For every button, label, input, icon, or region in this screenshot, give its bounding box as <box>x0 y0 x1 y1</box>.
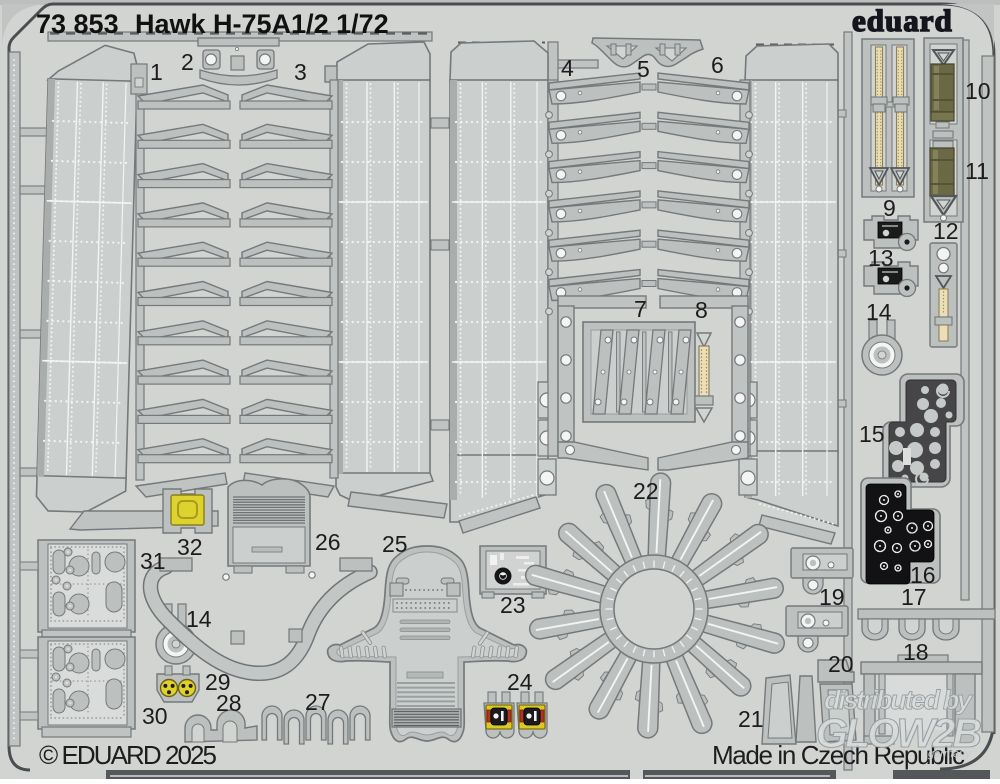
svg-text:7: 7 <box>634 296 647 322</box>
svg-text:10: 10 <box>965 78 991 104</box>
svg-text:14: 14 <box>186 606 212 632</box>
svg-text:germany: germany <box>928 748 972 760</box>
svg-text:23: 23 <box>500 592 526 618</box>
svg-text:22: 22 <box>633 478 659 504</box>
svg-text:19: 19 <box>819 584 845 610</box>
svg-text:4: 4 <box>561 55 574 81</box>
svg-text:17: 17 <box>901 584 927 610</box>
svg-text:9: 9 <box>883 195 896 221</box>
svg-text:14: 14 <box>866 299 892 325</box>
svg-text:32: 32 <box>177 534 203 560</box>
svg-text:20: 20 <box>828 651 854 677</box>
svg-text:1: 1 <box>150 59 163 85</box>
svg-text:13: 13 <box>868 245 894 271</box>
svg-text:3: 3 <box>294 59 307 85</box>
svg-text:73 853: 73 853 <box>36 9 119 39</box>
svg-text:Hawk H-75A1/2 1/72: Hawk H-75A1/2 1/72 <box>135 9 389 39</box>
svg-text:2: 2 <box>181 49 194 75</box>
svg-text:12: 12 <box>933 218 959 244</box>
svg-text:© EDUARD 2025: © EDUARD 2025 <box>39 740 217 770</box>
svg-text:29: 29 <box>205 669 231 695</box>
svg-text:8: 8 <box>695 297 708 323</box>
svg-text:25: 25 <box>382 531 408 557</box>
svg-text:eduard: eduard <box>852 3 953 38</box>
svg-text:30: 30 <box>142 703 168 729</box>
svg-text:11: 11 <box>965 158 989 184</box>
svg-text:15: 15 <box>859 421 885 447</box>
svg-text:6: 6 <box>711 52 724 78</box>
svg-text:18: 18 <box>903 639 929 665</box>
svg-text:27: 27 <box>305 689 331 715</box>
svg-text:24: 24 <box>507 669 533 695</box>
svg-text:21: 21 <box>738 706 764 732</box>
svg-text:5: 5 <box>637 56 650 82</box>
svg-text:26: 26 <box>315 529 341 555</box>
svg-text:31: 31 <box>140 548 166 574</box>
